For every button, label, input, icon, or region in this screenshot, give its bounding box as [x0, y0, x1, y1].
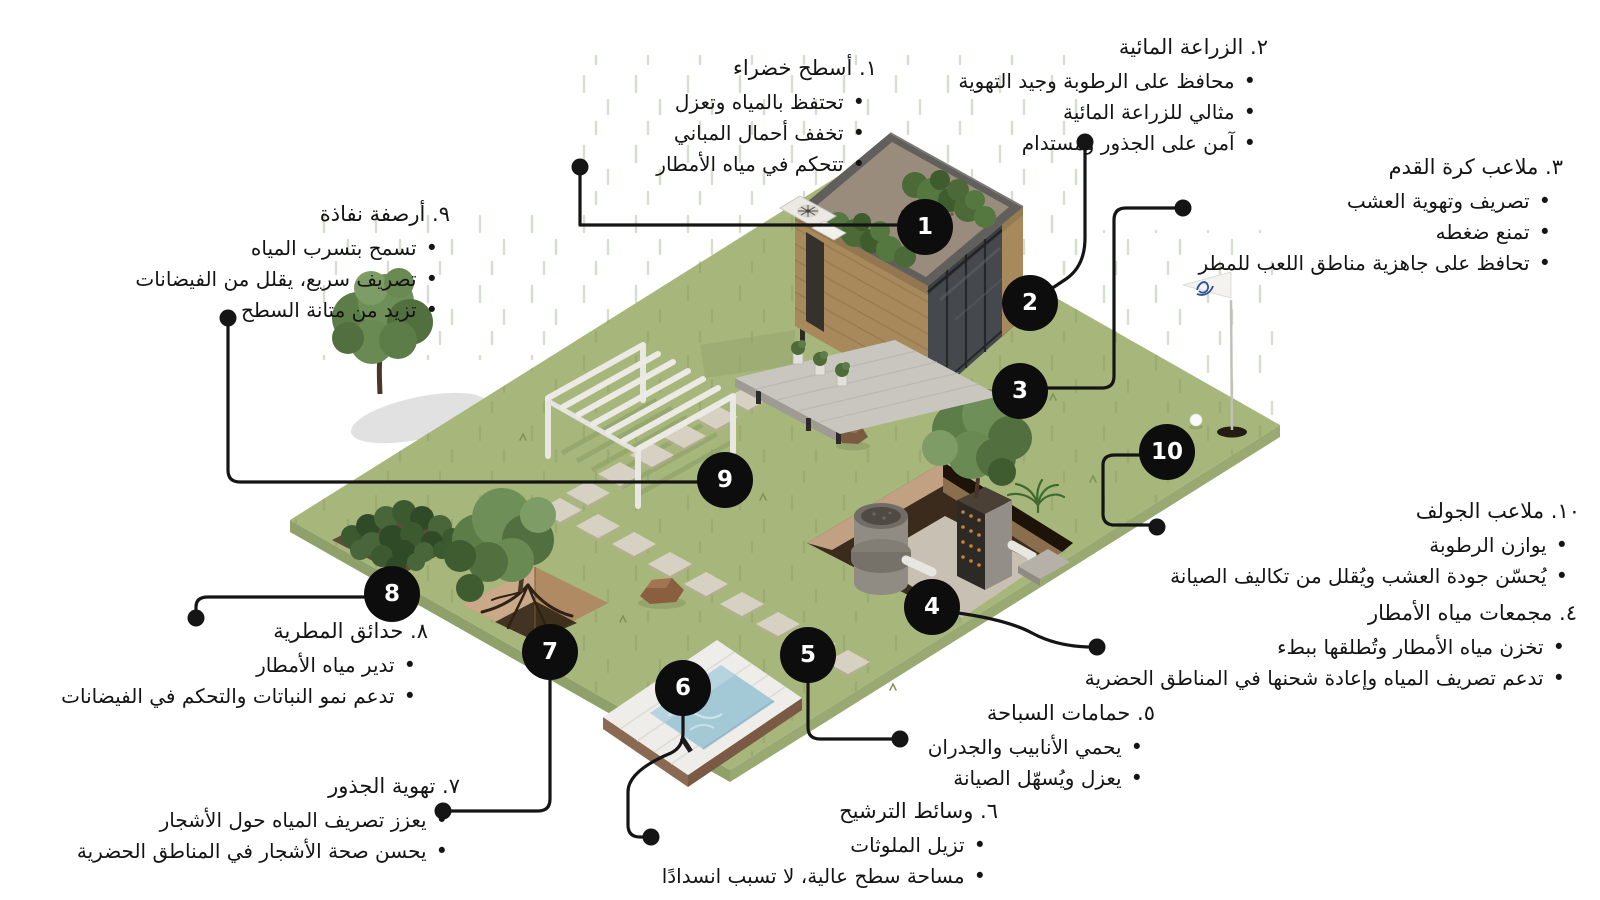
- annotation-permeable-pavements: ٩. أرصفة نفاذة تسمح بتسرب المياه تصريف س…: [135, 199, 450, 326]
- callout-badge-4: 4: [904, 579, 960, 635]
- callout-badge-1: 1: [897, 199, 953, 255]
- annotation-bullet: تصريف سريع، يقلل من الفيضانات: [135, 264, 450, 295]
- callout-badge-7: 7: [522, 624, 578, 680]
- annotation-swimming-pools: ٥. حمامات السباحة يحمي الأنابيب والجدران…: [928, 698, 1155, 794]
- annotation-bullet: محافظ على الرطوبة وجيد التهوية: [958, 66, 1268, 97]
- annotation-bullet: تمنع ضغطه: [1198, 217, 1563, 248]
- annotation-title: ١٠. ملاعب الجولف: [1170, 496, 1580, 527]
- annotation-bullet: تخزن مياه الأمطار وتُطلقها ببطء: [1085, 632, 1577, 663]
- annotation-bullet: تصريف وتهوية العشب: [1198, 186, 1563, 217]
- callout-badge-3: 3: [992, 363, 1048, 419]
- annotation-title: ٩. أرصفة نفاذة: [135, 199, 450, 230]
- annotation-bullet: تتحكم في مياه الأمطار: [656, 149, 877, 180]
- annotation-title: ٥. حمامات السباحة: [928, 698, 1155, 729]
- annotation-bullet: مثالي للزراعة المائية: [958, 97, 1268, 128]
- callout-badge-6: 6: [655, 660, 711, 716]
- annotation-rain-gardens: ٨. حدائق المطرية تدير مياه الأمطار تدعم …: [61, 616, 428, 712]
- annotation-bullet: مساحة سطح عالية، لا تسبب انسدادًا: [662, 861, 998, 892]
- annotation-bullet: يحمي الأنابيب والجدران: [928, 732, 1155, 763]
- annotation-root-aeration: ٧. تهوية الجذور يعزز تصريف المياه حول ال…: [77, 771, 460, 867]
- annotation-hydroponics: ٢. الزراعة المائية محافظ على الرطوبة وجي…: [958, 32, 1268, 159]
- annotation-bullet: يعزل ويُسهّل الصيانة: [928, 763, 1155, 794]
- annotation-bullet: تزيل الملوثات: [662, 830, 998, 861]
- annotation-title: ١. أسطح خضراء: [656, 53, 877, 84]
- callout-badge-10: 10: [1139, 424, 1195, 480]
- annotation-title: ٦. وسائط الترشيح: [662, 796, 998, 827]
- annotation-title: ٨. حدائق المطرية: [61, 616, 428, 647]
- annotation-rainwater-collectors: ٤. مجمعات مياه الأمطار تخزن مياه الأمطار…: [1085, 598, 1577, 694]
- annotation-football-fields: ٣. ملاعب كرة القدم تصريف وتهوية العشب تم…: [1198, 152, 1563, 279]
- annotation-bullet: تحافظ على جاهزية مناطق اللعب للمطر: [1198, 248, 1563, 279]
- annotation-bullet: تزيد من متانة السطح: [135, 295, 450, 326]
- annotation-bullet: يُحسّن جودة العشب ويُقلل من تكاليف الصيا…: [1170, 561, 1580, 592]
- annotation-title: ٣. ملاعب كرة القدم: [1198, 152, 1563, 183]
- infographic-canvas: 1 2 3 4 5 6 7 8 9 10 ١. أسطح خضراء تحتفظ…: [0, 0, 1600, 900]
- annotation-bullet: تحتفظ بالمياه وتعزل: [656, 87, 877, 118]
- annotation-filtration-media: ٦. وسائط الترشيح تزيل الملوثات مساحة سطح…: [662, 796, 998, 892]
- annotation-bullet: تسمح بتسرب المياه: [135, 233, 450, 264]
- callout-badge-2: 2: [1002, 275, 1058, 331]
- annotation-bullet: يوازن الرطوبة: [1170, 530, 1580, 561]
- annotation-bullet: يحسن صحة الأشجار في المناطق الحضرية: [77, 836, 460, 867]
- annotation-title: ٧. تهوية الجذور: [77, 771, 460, 802]
- callout-badge-5: 5: [780, 627, 836, 683]
- annotation-title: ٤. مجمعات مياه الأمطار: [1085, 598, 1577, 629]
- callout-badge-9: 9: [697, 452, 753, 508]
- annotation-bullet: تخفف أحمال المباني: [656, 118, 877, 149]
- annotation-bullet: تدعم نمو النباتات والتحكم في الفيضانات: [61, 681, 428, 712]
- annotation-bullet: يعزز تصريف المياه حول الأشجار: [77, 805, 460, 836]
- annotation-title: ٢. الزراعة المائية: [958, 32, 1268, 63]
- annotation-green-roofs: ١. أسطح خضراء تحتفظ بالمياه وتعزل تخفف أ…: [656, 53, 877, 180]
- annotation-bullet: تدعم تصريف المياه وإعادة شحنها في المناط…: [1085, 663, 1577, 694]
- annotation-golf-courses: ١٠. ملاعب الجولف يوازن الرطوبة يُحسّن جو…: [1170, 496, 1580, 592]
- callout-badge-8: 8: [364, 566, 420, 622]
- annotation-bullet: تدير مياه الأمطار: [61, 650, 428, 681]
